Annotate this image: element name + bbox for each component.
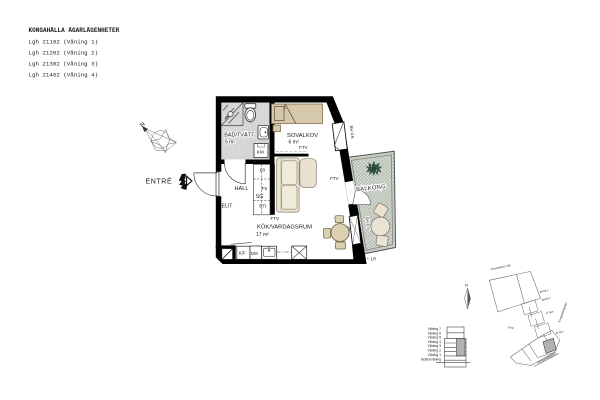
svg-text:FTV: FTV (271, 216, 280, 221)
svg-text:SG: SG (256, 194, 263, 200)
svg-text:ENTRÉ: ENTRÉ (146, 177, 173, 186)
svg-text:* 1R: * 1R (367, 256, 376, 261)
svg-text:Torg: Torg (508, 326, 514, 330)
svg-text:BAD/TVÄTT: BAD/TVÄTT (224, 132, 255, 139)
svg-text:Lgh 21302 (Våning 3): Lgh 21302 (Våning 3) (29, 61, 99, 68)
svg-text:17 m²: 17 m² (256, 232, 269, 238)
svg-text:L8: L8 (260, 168, 266, 173)
svg-text:Lgh 21402 (Våning 4): Lgh 21402 (Våning 4) (29, 72, 99, 79)
svg-text:K/F: K/F (239, 251, 246, 256)
svg-text:FTV: FTV (330, 176, 339, 181)
svg-text:Lgh 21202 (Våning 2): Lgh 21202 (Våning 2) (29, 50, 99, 57)
svg-text:KÖK/VARDAGSRUM: KÖK/VARDAGSRUM (257, 224, 312, 231)
svg-text:ELIT: ELIT (222, 204, 234, 210)
svg-text:SOVALKOV: SOVALKOV (287, 133, 318, 139)
svg-text:Lgh 21102 (Våning 1): Lgh 21102 (Våning 1) (29, 39, 99, 46)
svg-text:HALL: HALL (235, 186, 249, 192)
svg-text:Våning 1: Våning 1 (428, 353, 441, 357)
svg-text:DM: DM (251, 251, 258, 256)
svg-text:N: N (465, 283, 468, 288)
svg-text:F5: F5 (262, 186, 268, 191)
svg-text:6 m²: 6 m² (289, 140, 299, 146)
svg-text:5 m²: 5 m² (225, 140, 235, 146)
svg-text:KONGAHÄLLA ÄGARLÄGENHETER: KONGAHÄLLA ÄGARLÄGENHETER (29, 27, 120, 34)
svg-text:FTV: FTV (299, 145, 308, 150)
svg-text:STI: STI (259, 204, 266, 210)
svg-text:KM: KM (257, 149, 264, 154)
svg-text:Bottenvåning: Bottenvåning (421, 357, 441, 361)
